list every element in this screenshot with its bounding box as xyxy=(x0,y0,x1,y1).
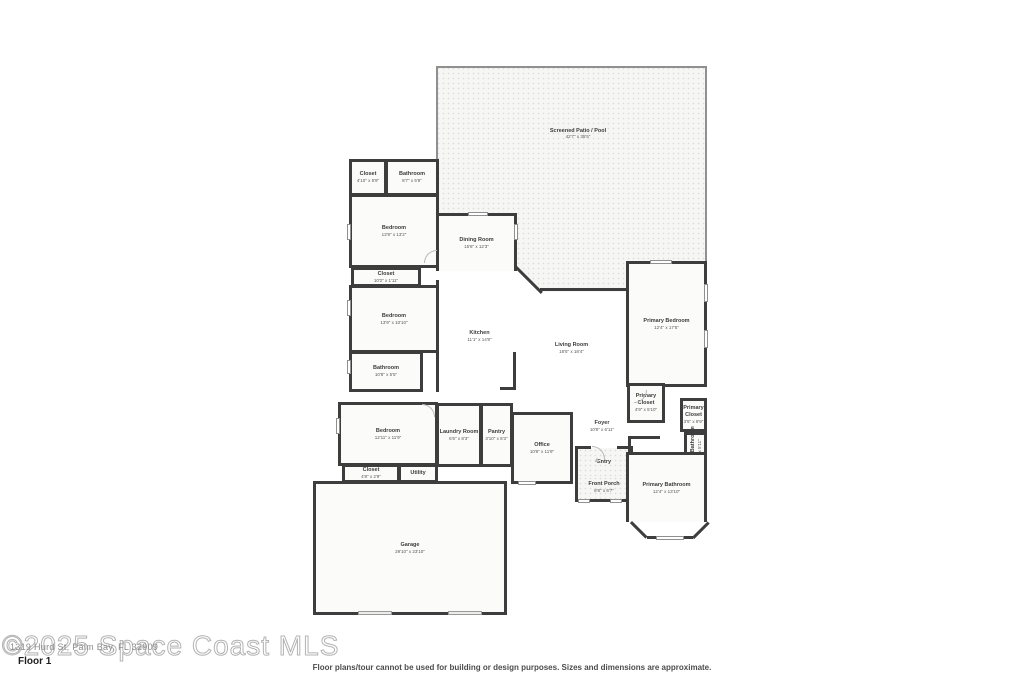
room-label: Garage29'10" x 23'10" xyxy=(395,542,425,555)
room-label: Primary Closet3'5" x 8'9" xyxy=(683,405,704,424)
room-label: Bedroom13'9" x 10'10" xyxy=(380,313,407,326)
room-label: Kitchen11'1" x 14'8" xyxy=(467,330,491,343)
room-label: Living Room18'5" x 18'4" xyxy=(555,342,588,355)
room-dims: 4'10" x 5'9" xyxy=(357,178,379,184)
room-dims: 3'10" x 8'3" xyxy=(485,436,507,442)
room-name: Utility xyxy=(410,470,425,477)
room-dims: 10'2" x 1'11" xyxy=(374,278,398,284)
room-dims: 12'4" x 17'5" xyxy=(643,325,689,331)
room-dims: 18'5" x 18'4" xyxy=(555,349,588,355)
room-dims: 10'8" x 5'5" xyxy=(373,372,399,378)
kitchen-counter-wall-vertical xyxy=(513,352,516,390)
rooms-layer: Closet4'10" x 5'9"Bathroom8'7" x 5'9"Bed… xyxy=(0,0,1024,683)
bay-window xyxy=(656,536,684,540)
room-name: Front Porch xyxy=(588,481,619,488)
entry-wall-left-stub xyxy=(575,446,591,449)
foyer-hall-wall-vertical xyxy=(628,436,631,454)
room-name: Closet xyxy=(374,271,398,278)
room-label: Primary Bathroom12'4" x 13'10" xyxy=(643,482,691,495)
room-dining-room: Dining Room15'6" x 12'3" xyxy=(436,213,517,271)
room-name: Kitchen xyxy=(467,330,491,337)
room-dims: 10'8" x 11'9" xyxy=(530,449,554,455)
room-label: Bedroom12'11" x 11'9" xyxy=(375,428,402,441)
room-label: Front Porch8'8" x 6'7" xyxy=(588,481,619,494)
dining-room-window-top xyxy=(468,212,488,216)
room-name: Primary Closet xyxy=(683,405,704,419)
room-office: Office10'8" x 11'9" xyxy=(511,412,573,484)
bathroom-2-window xyxy=(347,360,351,374)
room-bathroom-top: Bathroom8'7" x 5'9" xyxy=(385,159,439,196)
foyer-hall-wall xyxy=(628,436,660,439)
room-kitchen: Kitchen11'1" x 14'8" xyxy=(436,280,520,392)
primary-bedroom-window-right-1 xyxy=(704,284,708,302)
garage-door-1 xyxy=(358,611,392,615)
room-name: Pantry xyxy=(485,429,507,436)
room-garage: Garage29'10" x 23'10" xyxy=(313,481,507,615)
room-label: Foyer10'8" x 6'11" xyxy=(590,420,614,433)
room-primary-bedroom: Primary Bedroom12'4" x 17'5" xyxy=(626,261,707,387)
front-porch-window-2 xyxy=(610,499,622,503)
bedroom-3-window xyxy=(336,418,340,434)
room-bathroom-2: Bathroom10'8" x 5'5" xyxy=(349,351,423,392)
dining-room-window-right xyxy=(514,224,518,240)
room-dims: 11'1" x 14'8" xyxy=(467,337,491,343)
room-label: Closet4'8" x 2'9" xyxy=(361,467,381,480)
entry-wall-right-stub xyxy=(617,446,633,449)
room-name: Closet xyxy=(357,171,379,178)
address-watermark: 1319 Hurd St, Palm Bay, FL 32909 xyxy=(10,642,158,652)
room-dims: 13'9" x 10'10" xyxy=(380,320,407,326)
room-label: Utility xyxy=(410,470,425,477)
kitchen-counter-wall-horizontal xyxy=(500,387,516,390)
office-window xyxy=(518,481,536,485)
room-label: Bathroom10'8" x 5'5" xyxy=(373,365,399,378)
room-label: Bathroom8'7" x 5'9" xyxy=(399,171,425,184)
room-name: Foyer xyxy=(590,420,614,427)
room-dims: 10'8" x 6'11" xyxy=(590,427,614,433)
room-dims: 4'9" x 5'10" xyxy=(630,407,662,413)
room-dims: 4'8" x 2'9" xyxy=(361,474,381,480)
room-dims: 29'10" x 23'10" xyxy=(395,549,425,555)
room-name: Bedroom xyxy=(380,313,407,320)
bedroom-1-window xyxy=(347,224,351,240)
living-room-top-wall xyxy=(540,288,628,291)
room-label: Office10'8" x 11'9" xyxy=(530,442,554,455)
room-label: Primary Bedroom12'4" x 17'5" xyxy=(643,318,689,331)
room-name: Bathroom xyxy=(373,365,399,372)
room-name: Primary Bedroom xyxy=(643,318,689,325)
room-closet-hall: Closet10'2" x 1'11" xyxy=(351,267,421,287)
room-name: Primary Bathroom xyxy=(643,482,691,489)
room-label: Pantry3'10" x 8'3" xyxy=(485,429,507,442)
room-primary-bathroom: Primary Bathroom12'4" x 13'10" xyxy=(626,452,707,522)
room-bedroom-2: Bedroom13'9" x 10'10" xyxy=(349,285,439,353)
room-name: Bedroom xyxy=(375,428,402,435)
room-label: Laundry Room6'6" x 8'3" xyxy=(440,429,479,442)
room-dims: 12'11" x 11'9" xyxy=(375,435,402,441)
room-dims: 3'5" x 8'9" xyxy=(683,419,704,425)
room-entry: Entry xyxy=(575,448,633,476)
room-foyer: Foyer10'8" x 6'11" xyxy=(571,406,633,446)
room-dims: 12'4" x 13'10" xyxy=(643,489,691,495)
room-name: Laundry Room xyxy=(440,429,479,436)
room-closet-top: Closet4'10" x 5'9" xyxy=(349,159,387,196)
room-label: Bedroom13'9" x 13'2" xyxy=(382,225,407,238)
room-name: Garage xyxy=(395,542,425,549)
room-label: Closet10'2" x 1'11" xyxy=(374,271,398,284)
room-name: Bedroom xyxy=(382,225,407,232)
front-porch-window-1 xyxy=(578,499,590,503)
room-name: Closet xyxy=(361,467,381,474)
room-name: Office xyxy=(530,442,554,449)
room-laundry-room: Laundry Room6'6" x 8'3" xyxy=(436,403,482,467)
room-name: Dining Room xyxy=(459,237,493,244)
room-dims: 8'8" x 6'7" xyxy=(588,488,619,494)
disclaimer-text: Floor plans/tour cannot be used for buil… xyxy=(0,663,1024,672)
bedroom-2-window xyxy=(347,300,351,316)
entry-marker-icon: ▲ xyxy=(593,455,601,464)
room-primary-closet-1: Primary Closet4'9" x 5'10" xyxy=(627,383,665,423)
garage-door-2 xyxy=(448,611,482,615)
room-label: Closet4'10" x 5'9" xyxy=(357,171,379,184)
room-pantry: Pantry3'10" x 8'3" xyxy=(480,403,513,467)
room-dims: 8'7" x 5'9" xyxy=(399,178,425,184)
primary-bedroom-window-right-2 xyxy=(704,330,708,348)
room-label: Dining Room15'6" x 12'3" xyxy=(459,237,493,250)
room-name: Living Room xyxy=(555,342,588,349)
room-name: Bathroom xyxy=(399,171,425,178)
room-living-room: Living Room18'5" x 18'4" xyxy=(516,291,627,406)
primary-bedroom-window-top xyxy=(650,260,672,264)
room-dims: 15'6" x 12'3" xyxy=(459,244,493,250)
room-dims: 13'9" x 13'2" xyxy=(382,232,407,238)
room-dims: 6'6" x 8'3" xyxy=(440,436,479,442)
